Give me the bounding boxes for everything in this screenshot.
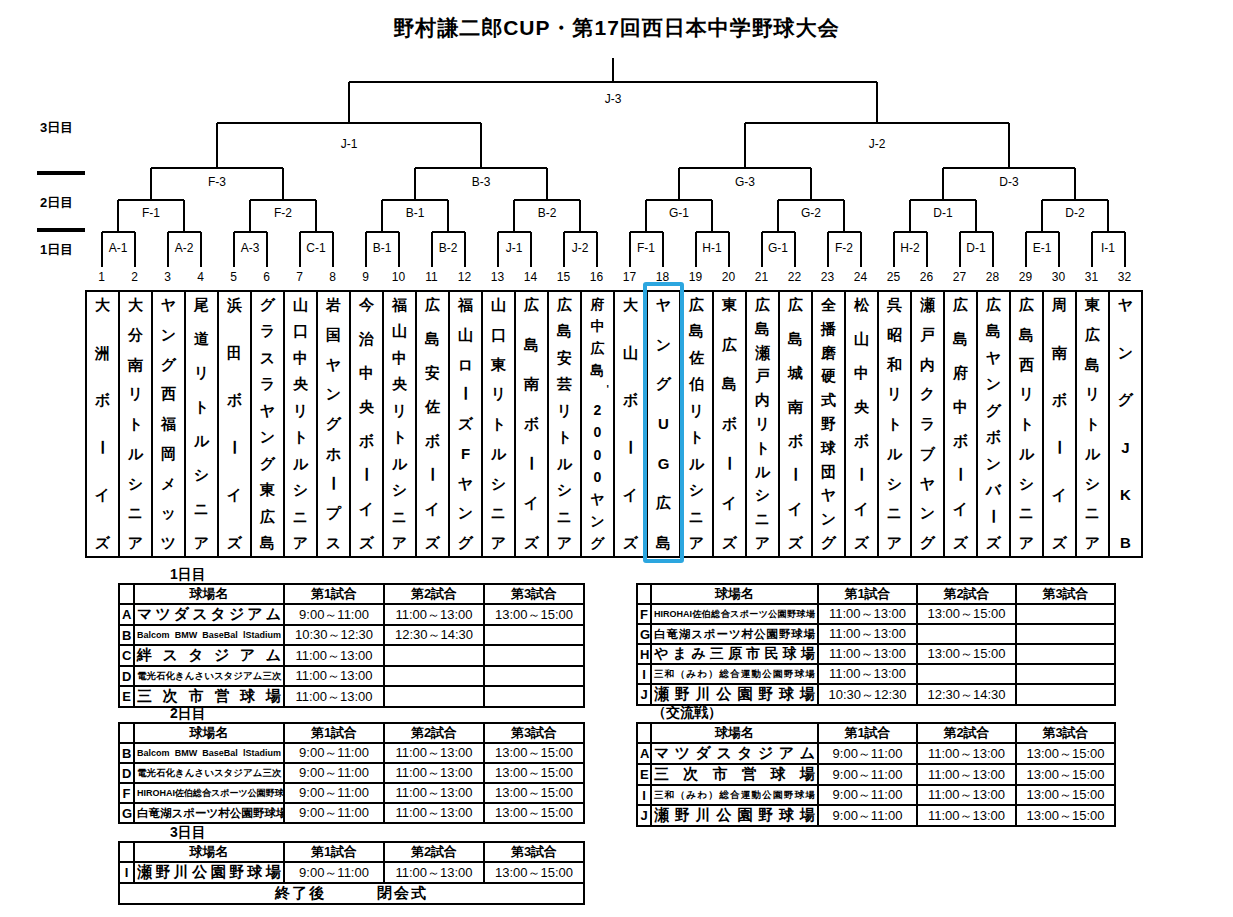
game-time: 9:00～11:00 (284, 803, 384, 823)
venue-letter: D (119, 666, 134, 686)
game-time: 11:00～13:00 (818, 624, 917, 644)
venue-letter: J (637, 805, 651, 826)
team-name-char: ア (1019, 535, 1034, 550)
team-name-char: 中 (359, 365, 374, 380)
team-name-char: シ (887, 476, 902, 491)
venue-row-I: I瀬野川公園野球場9:00～11:0011:00～13:0013:00～15:0… (119, 862, 584, 883)
column-header: 第2試合 (384, 842, 484, 862)
team-name-char: ニ (557, 509, 572, 524)
game-time (1016, 644, 1115, 664)
team-name-char: リ (194, 365, 209, 380)
game-time: 11:00～13:00 (917, 743, 1016, 764)
team-cell-32: ヤングJKB (1110, 292, 1141, 556)
team-name-char: 島 (722, 376, 737, 391)
team-name-char: シ (128, 476, 143, 491)
game-time: 13:00～15:00 (1016, 805, 1115, 826)
team-name-char: ヤ (458, 476, 473, 491)
venue-name: 電光石化きんさいスタジアム三次 (134, 763, 284, 783)
team-name-char: ル (557, 456, 572, 471)
venue-letter: C (119, 645, 134, 666)
team-name-char: イ (359, 501, 374, 516)
game-time: 9:00～11:00 (284, 743, 384, 763)
slot-number: 7 (296, 270, 303, 284)
team-name-char: 中 (854, 365, 869, 380)
team-name-char: ル (491, 446, 506, 461)
slot-number: 16 (590, 270, 604, 284)
team-name-char: ト (392, 429, 407, 444)
team-name-char: リ (755, 416, 770, 431)
team-name-char: ア (128, 535, 143, 550)
game-time (917, 624, 1016, 644)
team-name-char: ン (986, 456, 1001, 471)
team-name-char: ズ (425, 535, 440, 550)
team-name-char: 福 (392, 297, 407, 312)
match-label-semifinal: J-1 (341, 137, 358, 151)
team-cell-15: 広島安芸リトルシニア (549, 292, 582, 556)
column-header: 第3試合 (484, 842, 584, 862)
game-time: 9:00～11:00 (284, 862, 384, 883)
team-name-char: ' (607, 385, 613, 395)
team-name-char: メ (161, 476, 176, 491)
team-name-char: ボ (524, 416, 539, 431)
team-name-char: ア (1085, 535, 1100, 550)
team-name-char: シ (1085, 476, 1100, 491)
team-name-char: ー (524, 456, 539, 471)
team-name-char: 広 (1019, 297, 1034, 312)
venue-name: マツダスタジアム (134, 604, 284, 625)
team-name-char: ボ (1052, 392, 1067, 407)
team-name-char: ル (755, 464, 770, 479)
slot-number: 21 (755, 270, 769, 284)
team-name-char: ボ (623, 392, 638, 407)
game-time: 9:00～11:00 (284, 604, 384, 625)
team-name-char: ズ (722, 535, 737, 550)
team-name-char: イ (722, 495, 737, 510)
team-name-char: 南 (524, 376, 539, 391)
team-name-char: ン (260, 429, 275, 444)
team-name-char: 東 (260, 482, 275, 497)
team-name-char: ニ (293, 509, 308, 524)
slot-number: 30 (1052, 270, 1066, 284)
team-name-char: ト (557, 429, 572, 444)
game-time: 12:30～14:30 (384, 625, 484, 645)
team-name-char: 山 (392, 323, 407, 338)
team-name-char: 島 (755, 321, 770, 336)
team-name-char: イ (425, 501, 440, 516)
team-name-char: 戸 (755, 368, 770, 383)
team-name-char: ー (986, 509, 1001, 524)
schedule-table-4: 球場名第1試合第2試合第3試合Aマツダスタジアム9:00～11:0011:00～… (636, 722, 1116, 827)
slot-number: 28 (986, 270, 1000, 284)
game-time: 9:00～11:00 (284, 783, 384, 803)
team-cell-20: 東広島ボーイズ (714, 292, 747, 556)
team-name-char: ヤ (821, 487, 836, 502)
venue-name: 白竜湖スポーツ村公園野球場 (651, 624, 818, 644)
game-time: 9:00～11:00 (284, 763, 384, 783)
team-name-char: ボ (425, 433, 440, 448)
slot-number: 13 (491, 270, 505, 284)
slot-number: 31 (1085, 270, 1099, 284)
game-time: 9:00～11:00 (818, 805, 917, 826)
team-name-char: ニ (128, 505, 143, 520)
team-name-char: ー (854, 467, 869, 482)
venue-row-E: E三次市営球場11:00～13:00 (119, 686, 584, 707)
match-label-round1: F-1 (637, 241, 655, 255)
match-label-round2: G-1 (669, 206, 689, 220)
team-name-char: 広 (260, 509, 275, 524)
team-cell-3: ヤング西福岡メッツ (153, 292, 186, 556)
team-name-char: ヤ (260, 403, 275, 418)
day-label: 1日目 (40, 242, 73, 257)
game-time (484, 686, 584, 707)
team-name-char: ー (326, 476, 341, 491)
match-label-round1: H-1 (702, 241, 722, 255)
team-name-char: 野 (821, 416, 836, 431)
team-name-char: 播 (821, 321, 836, 336)
team-name-char: 山 (854, 331, 869, 346)
venue-row-B: BBalcom BMW BaseBal lStadium10:30～12:301… (119, 625, 584, 645)
column-header: 第3試合 (484, 723, 584, 743)
venue-row-J: J瀬野川公園野球場10:30～12:3012:30～14:30 (637, 684, 1115, 705)
team-name-char: ホ (326, 446, 341, 461)
team-name-char: 治 (359, 331, 374, 346)
team-name-char: 呉 (887, 297, 902, 312)
venue-row-F: FHIROHAI佐伯総合スポーツ公園野球場11:00～13:0013:00～15… (637, 604, 1115, 624)
team-name-char: イ (524, 495, 539, 510)
column-header: 球場名 (134, 842, 284, 862)
slot-number: 15 (557, 270, 571, 284)
team-cell-30: 周南ボーイズ (1044, 292, 1077, 556)
game-time: 13:00～15:00 (484, 604, 584, 625)
column-header: 第3試合 (484, 584, 584, 604)
team-name-char: ン (590, 514, 604, 528)
team-name-char: 0 (594, 470, 602, 484)
team-cell-25: 呉昭和リトルシニア (879, 292, 912, 556)
venue-name: 瀬野川公園野球場 (651, 684, 818, 705)
team-name-char: ヤ (161, 297, 176, 312)
game-time: 13:00～15:00 (1016, 743, 1115, 764)
game-time: 11:00～13:00 (917, 785, 1016, 805)
schedule-table-title: （交流戦） (652, 704, 722, 722)
team-name-char: 安 (425, 365, 440, 380)
team-name-char: 分 (128, 327, 143, 342)
game-time (384, 645, 484, 666)
slot-number: 14 (524, 270, 538, 284)
schedule-table-title: 3日目 (170, 824, 206, 842)
team-name-char: K (1120, 487, 1131, 502)
team-name-char: 式 (821, 392, 836, 407)
team-name-char: 和 (887, 357, 902, 372)
venue-letter: I (637, 664, 651, 684)
team-name-char: シ (491, 476, 506, 491)
match-label-quarterfinal: F-3 (208, 175, 226, 189)
team-name-char: ヤ (920, 476, 935, 491)
game-time: 11:00～13:00 (917, 764, 1016, 785)
venue-letter: F (119, 783, 134, 803)
team-name-char: プ (326, 505, 341, 520)
team-name-char: 島 (425, 331, 440, 346)
team-name-char: ズ (95, 535, 110, 550)
game-time (1016, 684, 1115, 705)
match-label-round1: C-1 (306, 241, 326, 255)
venue-name: Balcom BMW BaseBal lStadium (134, 625, 284, 645)
slot-number: 29 (1019, 270, 1033, 284)
venue-row-B: BBalcom BMW BaseBal lStadium9:00～11:0011… (119, 743, 584, 763)
team-name-char: 西 (1019, 357, 1034, 372)
tournament-bracket: J-3J-1J-2F-3B-3G-3D-3F-1F-2B-1B-2G-1G-2D… (0, 0, 1233, 290)
team-name-char: ー (458, 386, 473, 401)
venue-name: Balcom BMW BaseBal lStadium (134, 743, 284, 763)
venue-letter: A (637, 743, 651, 764)
schedule-table-title: 2日目 (170, 705, 206, 723)
team-name-char: 山 (458, 327, 473, 342)
game-time (1016, 624, 1115, 644)
slot-number: 1 (98, 270, 105, 284)
team-name-char: 島 (557, 323, 572, 338)
match-label-round2: D-1 (933, 206, 953, 220)
team-name-char: ー (1052, 440, 1067, 455)
team-name-char: 内 (755, 392, 770, 407)
match-label-round1: A-2 (175, 241, 194, 255)
game-time: 9:00～11:00 (818, 764, 917, 785)
team-name-char: リ (1085, 386, 1100, 401)
team-name-char: 広 (986, 297, 1001, 312)
team-name-char: リ (128, 386, 143, 401)
team-name-char: グ (326, 416, 341, 431)
column-header: 第3試合 (1016, 584, 1115, 604)
column-header: 第1試合 (284, 842, 384, 862)
team-cell-7: 山口中央リトルシニア (285, 292, 318, 556)
team-name-char: 島 (953, 331, 968, 346)
team-name-char: ツ (161, 535, 176, 550)
day-label: 3日目 (40, 120, 73, 135)
team-name-char: 広 (425, 297, 440, 312)
team-name-char: 国 (326, 327, 341, 342)
team-name-char: ク (920, 386, 935, 401)
team-name-char: 佐 (689, 350, 704, 365)
venue-name: 瀬野川公園野球場 (134, 862, 284, 883)
team-name-char: 中 (953, 399, 968, 414)
header-blank-cell (637, 584, 651, 604)
slot-number: 11 (425, 270, 438, 284)
team-cell-11: 広島安佐ボーイズ (417, 292, 450, 556)
team-name-char: ズ (458, 416, 473, 431)
slot-number: 22 (788, 270, 802, 284)
column-header: 第2試合 (917, 584, 1016, 604)
team-name-char: 府 (953, 365, 968, 380)
game-time: 11:00～13:00 (384, 783, 484, 803)
team-name-char: ト (1019, 416, 1034, 431)
venue-name: 三次市営球場 (134, 686, 284, 707)
team-name-char: ア (887, 535, 902, 550)
match-label-round1: F-2 (835, 241, 853, 255)
team-name-char: グ (986, 403, 1001, 418)
slot-number: 3 (164, 270, 171, 284)
team-name-char: ア (491, 535, 506, 550)
team-name-char: ニ (1085, 505, 1100, 520)
team-name-char: ズ (953, 535, 968, 550)
venue-name: 絆スタジアム (134, 645, 284, 666)
team-name-char: ヤ (326, 357, 341, 372)
team-name-char: 広 (953, 297, 968, 312)
venue-letter: G (637, 624, 651, 644)
game-time: 13:00～15:00 (484, 743, 584, 763)
slot-number: 20 (722, 270, 736, 284)
team-name-char: イ (788, 501, 803, 516)
team-name-char: ー (722, 456, 737, 471)
match-label-quarterfinal: B-3 (472, 175, 491, 189)
team-name-char: ニ (755, 511, 770, 526)
header-blank-cell (637, 723, 651, 743)
team-cell-12: 福山ローズFヤング (450, 292, 483, 556)
team-name-char: 内 (920, 357, 935, 372)
venue-letter: E (119, 686, 134, 707)
team-name-char: ヤ (590, 492, 604, 506)
team-name-char: ズ (359, 535, 374, 550)
team-name-char: 尾 (194, 297, 209, 312)
team-name-char: ル (293, 456, 308, 471)
team-cell-10: 福山中央リトルシニア (384, 292, 417, 556)
venue-letter: A (119, 604, 134, 625)
team-name-char: 硬 (821, 368, 836, 383)
team-name-char: 安 (557, 350, 572, 365)
team-name-char: ー (227, 440, 242, 455)
team-name-char: バ (986, 482, 1001, 497)
game-time: 13:00～15:00 (484, 763, 584, 783)
column-header: 球場名 (651, 723, 818, 743)
game-time: 11:00～13:00 (818, 604, 917, 624)
team-name-char: 央 (359, 399, 374, 414)
team-name-char: 府 (591, 297, 605, 311)
venue-row-G: G白竜湖スポーツ村公園野球場11:00～13:00 (637, 624, 1115, 644)
team-name-char: B (1120, 535, 1131, 550)
team-name-char: 伯 (689, 376, 704, 391)
game-time: 11:00～13:00 (917, 805, 1016, 826)
game-time (1016, 664, 1115, 684)
slot-number: 2 (131, 270, 138, 284)
match-label-round1: B-2 (439, 241, 458, 255)
schedule-header-row: 球場名第1試合第2試合第3試合 (119, 723, 584, 743)
venue-letter: I (119, 862, 134, 883)
game-time (917, 664, 1016, 684)
team-name-char: J (1121, 440, 1129, 455)
closing-ceremony-label: 終了後 閉会式 (119, 883, 584, 904)
game-time: 11:00～13:00 (384, 604, 484, 625)
team-name-char: グ (590, 536, 604, 550)
game-time: 10:30～12:30 (284, 625, 384, 645)
team-name-char: 島 (260, 535, 275, 550)
team-name-char: 山 (623, 345, 638, 360)
team-name-char: ト (1085, 416, 1100, 431)
team-name-char: 島 (524, 337, 539, 352)
venue-name: 電光石化きんさいスタジアム三次 (134, 666, 284, 686)
team-name-char: ズ (623, 535, 638, 550)
team-name-char: ブ (920, 446, 935, 461)
column-header: 球場名 (134, 584, 284, 604)
schedule-table-3: 球場名第1試合第2試合第3試合BBalcom BMW BaseBal lStad… (118, 722, 585, 824)
team-name-char: 中 (392, 350, 407, 365)
venue-name: 三和（みわ）総合運動公園野球場 (651, 785, 818, 805)
team-name-char: 大 (623, 297, 638, 312)
team-name-char: ト (128, 416, 143, 431)
team-name-char: 島 (1085, 357, 1100, 372)
team-name-char: ッ (161, 505, 176, 520)
team-name-char: 南 (788, 399, 803, 414)
match-label-round1: D-1 (966, 241, 986, 255)
team-name-char: グ (260, 297, 275, 312)
team-cell-9: 今治中央ボーイズ (351, 292, 384, 556)
venue-row-D: D電光石化きんさいスタジアム三次11:00～13:00 (119, 666, 584, 686)
column-header: 第2試合 (917, 723, 1016, 743)
team-name-char: 広 (591, 341, 605, 355)
venue-letter: E (637, 764, 651, 785)
team-name-char: 洲 (95, 345, 110, 360)
schedule-header-row: 球場名第1試合第2試合第3試合 (637, 723, 1115, 743)
schedule-table-1: 球場名第1試合第2試合第3試合Aマツダスタジアム9:00～11:0011:00～… (118, 583, 585, 708)
team-name-char: 島 (986, 323, 1001, 338)
team-name-char: 央 (392, 376, 407, 391)
game-time: 11:00～13:00 (384, 763, 484, 783)
game-time (484, 645, 584, 666)
team-cell-8: 岩国ヤングホープス (318, 292, 351, 556)
team-name-char: 広 (557, 297, 572, 312)
team-name-char: ト (194, 399, 209, 414)
team-name-char: ー (425, 467, 440, 482)
column-header: 第1試合 (818, 584, 917, 604)
team-name-char: 東 (1085, 297, 1100, 312)
team-cell-24: 松山中央ボーイズ (846, 292, 879, 556)
team-name-char: 大 (128, 297, 143, 312)
team-cell-21: 広島瀬戸内リトルシニア (747, 292, 780, 556)
column-header: 第1試合 (818, 723, 917, 743)
column-header: 球場名 (651, 584, 818, 604)
team-name-char: 島 (788, 331, 803, 346)
team-name-char: 島 (689, 323, 704, 338)
game-time: 13:00～15:00 (484, 803, 584, 823)
team-name-char: 今 (359, 297, 374, 312)
team-name-char: ボ (854, 433, 869, 448)
slot-number: 32 (1118, 270, 1132, 284)
team-name-char: 岩 (326, 297, 341, 312)
team-name-char: 広 (788, 297, 803, 312)
team-name-char: ア (392, 535, 407, 550)
schedule-table-5: 球場名第1試合第2試合第3試合I瀬野川公園野球場9:00～11:0011:00～… (118, 841, 585, 905)
game-time: 11:00～13:00 (284, 645, 384, 666)
venue-row-I: I三和（みわ）総合運動公園野球場9:00～11:0011:00～13:0013:… (637, 785, 1115, 805)
team-name-char: ア (293, 535, 308, 550)
team-name-char: 口 (491, 327, 506, 342)
team-name-char: ズ (1052, 535, 1067, 550)
match-label-final: J-3 (605, 92, 622, 106)
header-blank-cell (119, 842, 134, 862)
team-name-char: シ (689, 482, 704, 497)
team-name-char: ア (194, 535, 209, 550)
venue-letter: J (637, 684, 651, 705)
column-header: 第3試合 (1016, 723, 1115, 743)
match-label-round2: G-2 (801, 206, 821, 220)
game-time (484, 666, 584, 686)
venue-name: 瀬野川公園野球場 (651, 805, 818, 826)
team-name-char: 瀬 (920, 297, 935, 312)
team-name-char: ニ (491, 505, 506, 520)
venue-row-C: C絆スタジアム11:00～13:00 (119, 645, 584, 666)
team-name-char: F (461, 446, 470, 461)
slot-number: 8 (329, 270, 336, 284)
venue-letter: D (119, 763, 134, 783)
team-name-char: ン (1118, 345, 1133, 360)
team-name-char: リ (689, 403, 704, 418)
team-name-char: シ (392, 482, 407, 497)
